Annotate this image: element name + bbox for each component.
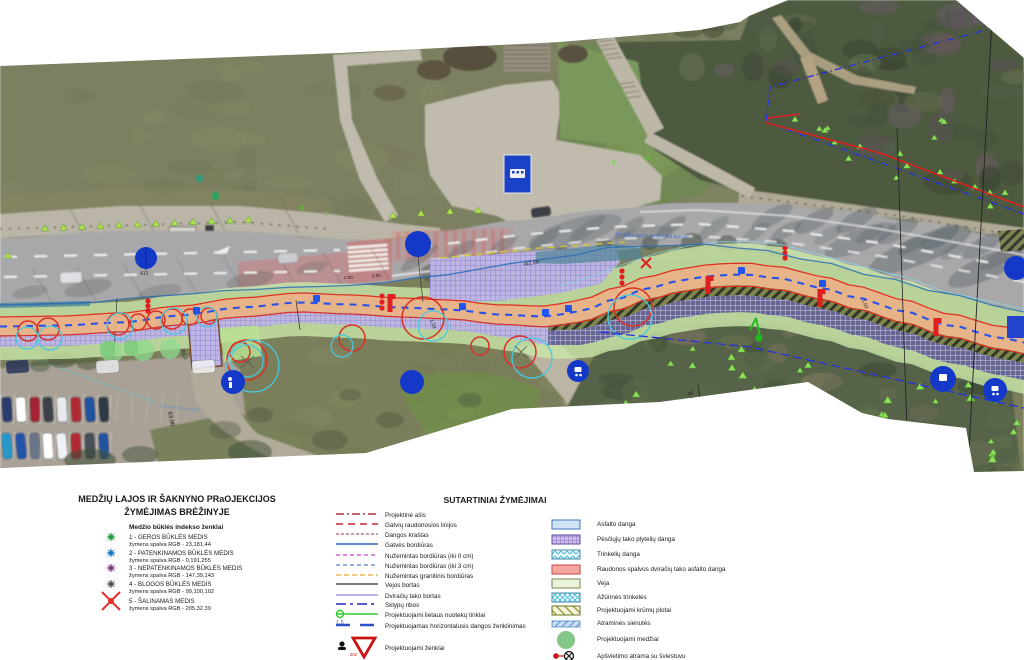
svg-text:1 - GEROS BŪKLĖS MEDIS: 1 - GEROS BŪKLĖS MEDIS [129,534,208,541]
svg-text:Medžio būklės indekso ženklai: Medžio būklės indekso ženklai [129,524,223,531]
svg-text:Asfalto danga: Asfalto danga [597,521,636,528]
svg-text:ŽYMĖJIMAS BRĖŽINYJE: ŽYMĖJIMAS BRĖŽINYJE [124,506,230,517]
svg-text:Sklypų ribos: Sklypų ribos [385,602,419,609]
svg-text:Gatvės bordiūras: Gatvės bordiūras [385,542,433,549]
svg-text:1.5: 1.5 [336,620,344,626]
svg-text:Pėsčiųjų tako plytelių danga: Pėsčiųjų tako plytelių danga [597,536,676,543]
svg-text:SUTARTINIAI ŽYMĖJIMAI: SUTARTINIAI ŽYMĖJIMAI [444,494,547,505]
svg-text:žymens spalva RGB - 99,100,102: žymens spalva RGB - 99,100,102 [129,589,214,595]
svg-text:Gatvių raudonosios linijos: Gatvių raudonosios linijos [385,522,457,529]
svg-text:Trinkelių danga: Trinkelių danga [597,551,640,558]
svg-text:Nužemintas bordiūras (iki 0 cm: Nužemintas bordiūras (iki 0 cm) [385,553,474,560]
svg-text:4 - BLOGOS BŪKLĖS MEDIS: 4 - BLOGOS BŪKLĖS MEDIS [129,581,212,588]
svg-text:2.00: 2.00 [344,275,353,280]
svg-text:Dviračių tako bortas: Dviračių tako bortas [385,593,441,600]
svg-text:2.00: 2.00 [372,273,381,278]
svg-text:Nužemintas granitinis bordiūra: Nužemintas granitinis bordiūras [385,573,473,580]
svg-text:5 - ŠALINAMAS MEDIS: 5 - ŠALINAMAS MEDIS [129,598,195,605]
svg-text:Projektuojami lietaus nuotekų: Projektuojami lietaus nuotekų tinklai [385,612,485,619]
svg-text:Raudonos spalvos dviračių tako: Raudonos spalvos dviračių tako asfalto d… [597,566,726,573]
svg-text:3 - NEPATENKINAMOS BŪKLĖS MEDI: 3 - NEPATENKINAMOS BŪKLĖS MEDIS [129,565,242,572]
svg-text:MEDŽIŲ LAJOS IR ŠAKNYNO PRaOJE: MEDŽIŲ LAJOS IR ŠAKNYNO PRaOJEKCIJOS [78,493,276,504]
svg-text:413: 413 [140,271,149,277]
svg-text:žymens spalva RGB - 205.32.39: žymens spalva RGB - 205.32.39 [129,606,211,612]
svg-text:Dangos kraštas: Dangos kraštas [385,532,429,539]
svg-text:Projektinė ašis: Projektinė ašis [385,512,426,519]
svg-text:žymens spalva RGB - 147,39,14: žymens spalva RGB - 147,39,143 [129,573,214,579]
svg-text:Veja: Veja [597,580,610,587]
svg-text:žymens spalva RGB - 0,191,255: žymens spalva RGB - 0,191,255 [129,558,211,564]
svg-text:Projektuojami ženklai: Projektuojami ženklai [385,645,445,652]
svg-text:Projektuojami krūmų plotai: Projektuojami krūmų plotai [597,607,671,614]
svg-text:B: B [300,206,304,212]
svg-text:Ažūrinės trinkelės: Ažūrinės trinkelės [597,594,647,601]
svg-text:Projektuojamas horizontalusis: Projektuojamas horizontalusis dangos žen… [385,623,526,630]
svg-text:žymens spalva RGB - 23,181,44: žymens spalva RGB - 23,181,44 [129,542,211,548]
svg-text:Nužemintas bordiūras (iki 3 cm: Nužemintas bordiūras (iki 3 cm) [385,563,474,570]
svg-text:Apšvietimo atrama su šviestuvu: Apšvietimo atrama su šviestuvu [597,653,686,660]
svg-text:202: 202 [350,652,358,657]
svg-text:Vejos bortas: Vejos bortas [385,582,420,589]
svg-text:Projektuojami medžiai: Projektuojami medžiai [597,636,659,643]
svg-text:2 - PATENKINAMOS BŪKLĖS MEDIS: 2 - PATENKINAMOS BŪKLĖS MEDIS [129,550,234,557]
svg-text:Atraminės sienutės: Atraminės sienutės [597,620,651,627]
